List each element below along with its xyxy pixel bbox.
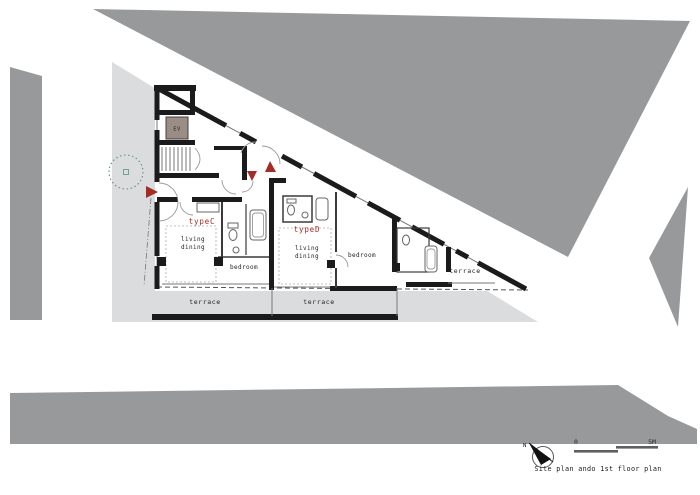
core-wall [157,110,195,115]
room-label-living-typeC-line2: dining [181,244,205,251]
toilet-tank-typeC [228,223,238,228]
core-wall [192,197,242,202]
party-wall-CD [269,178,274,290]
core-wall [157,173,219,178]
core-wall [157,197,178,202]
terrace-label-typeD: terrace [303,298,335,306]
column [327,260,335,268]
north-label: N [523,443,526,449]
scale-start-label: 0 [574,438,578,446]
core-wall [242,146,247,180]
toilet-east [403,235,410,245]
site-plan-drawing: EV [0,0,700,495]
kitchen-counter-typeC [197,203,219,212]
elevator-box: EV [166,117,188,139]
room-label-living-typeD-line2: dining [295,253,319,260]
room-label-living-typeC-line1: living [181,236,205,243]
wall-bottom-typeD [330,286,397,291]
core-wall [157,140,195,145]
unit-label-typeD: typeD [294,225,321,234]
scale-end-label: 5M [648,438,656,446]
basin-typeC [233,247,239,253]
context-block-east [649,187,688,327]
party-wall-stub [274,178,286,183]
column [157,257,166,266]
toilet-typeD [288,205,295,215]
plan-caption: Site plan ando 1st floor plan [534,465,661,473]
plan-canvas: EV [0,0,700,495]
core-wall [190,91,195,113]
scale-bar-segment-high [616,446,658,449]
column [392,263,400,271]
terrace-label-east: terrace [449,267,481,275]
unit-label-typeC: typeC [189,217,216,226]
north-arrow-icon: N [523,443,554,468]
scale-bar-segment-low [574,450,618,453]
bathtub-typeD [316,198,328,220]
terrace-label-typeC: terrace [189,298,221,306]
site-wall-south [152,314,398,320]
room-label-living-typeD-line1: living [295,245,319,252]
elevator-label: EV [173,127,181,133]
core-wall [214,146,246,150]
toilet-typeC [229,230,237,241]
context-block-west [10,67,42,320]
room-label-bedroom-typeD: bedroom [348,252,376,259]
column [214,257,223,266]
room-label-bedroom-typeC: bedroom [230,264,258,271]
basin-typeD [302,212,308,218]
wall-bottom-east [406,282,452,287]
toilet-tank-typeD [287,199,296,203]
context-block-south [10,385,697,444]
